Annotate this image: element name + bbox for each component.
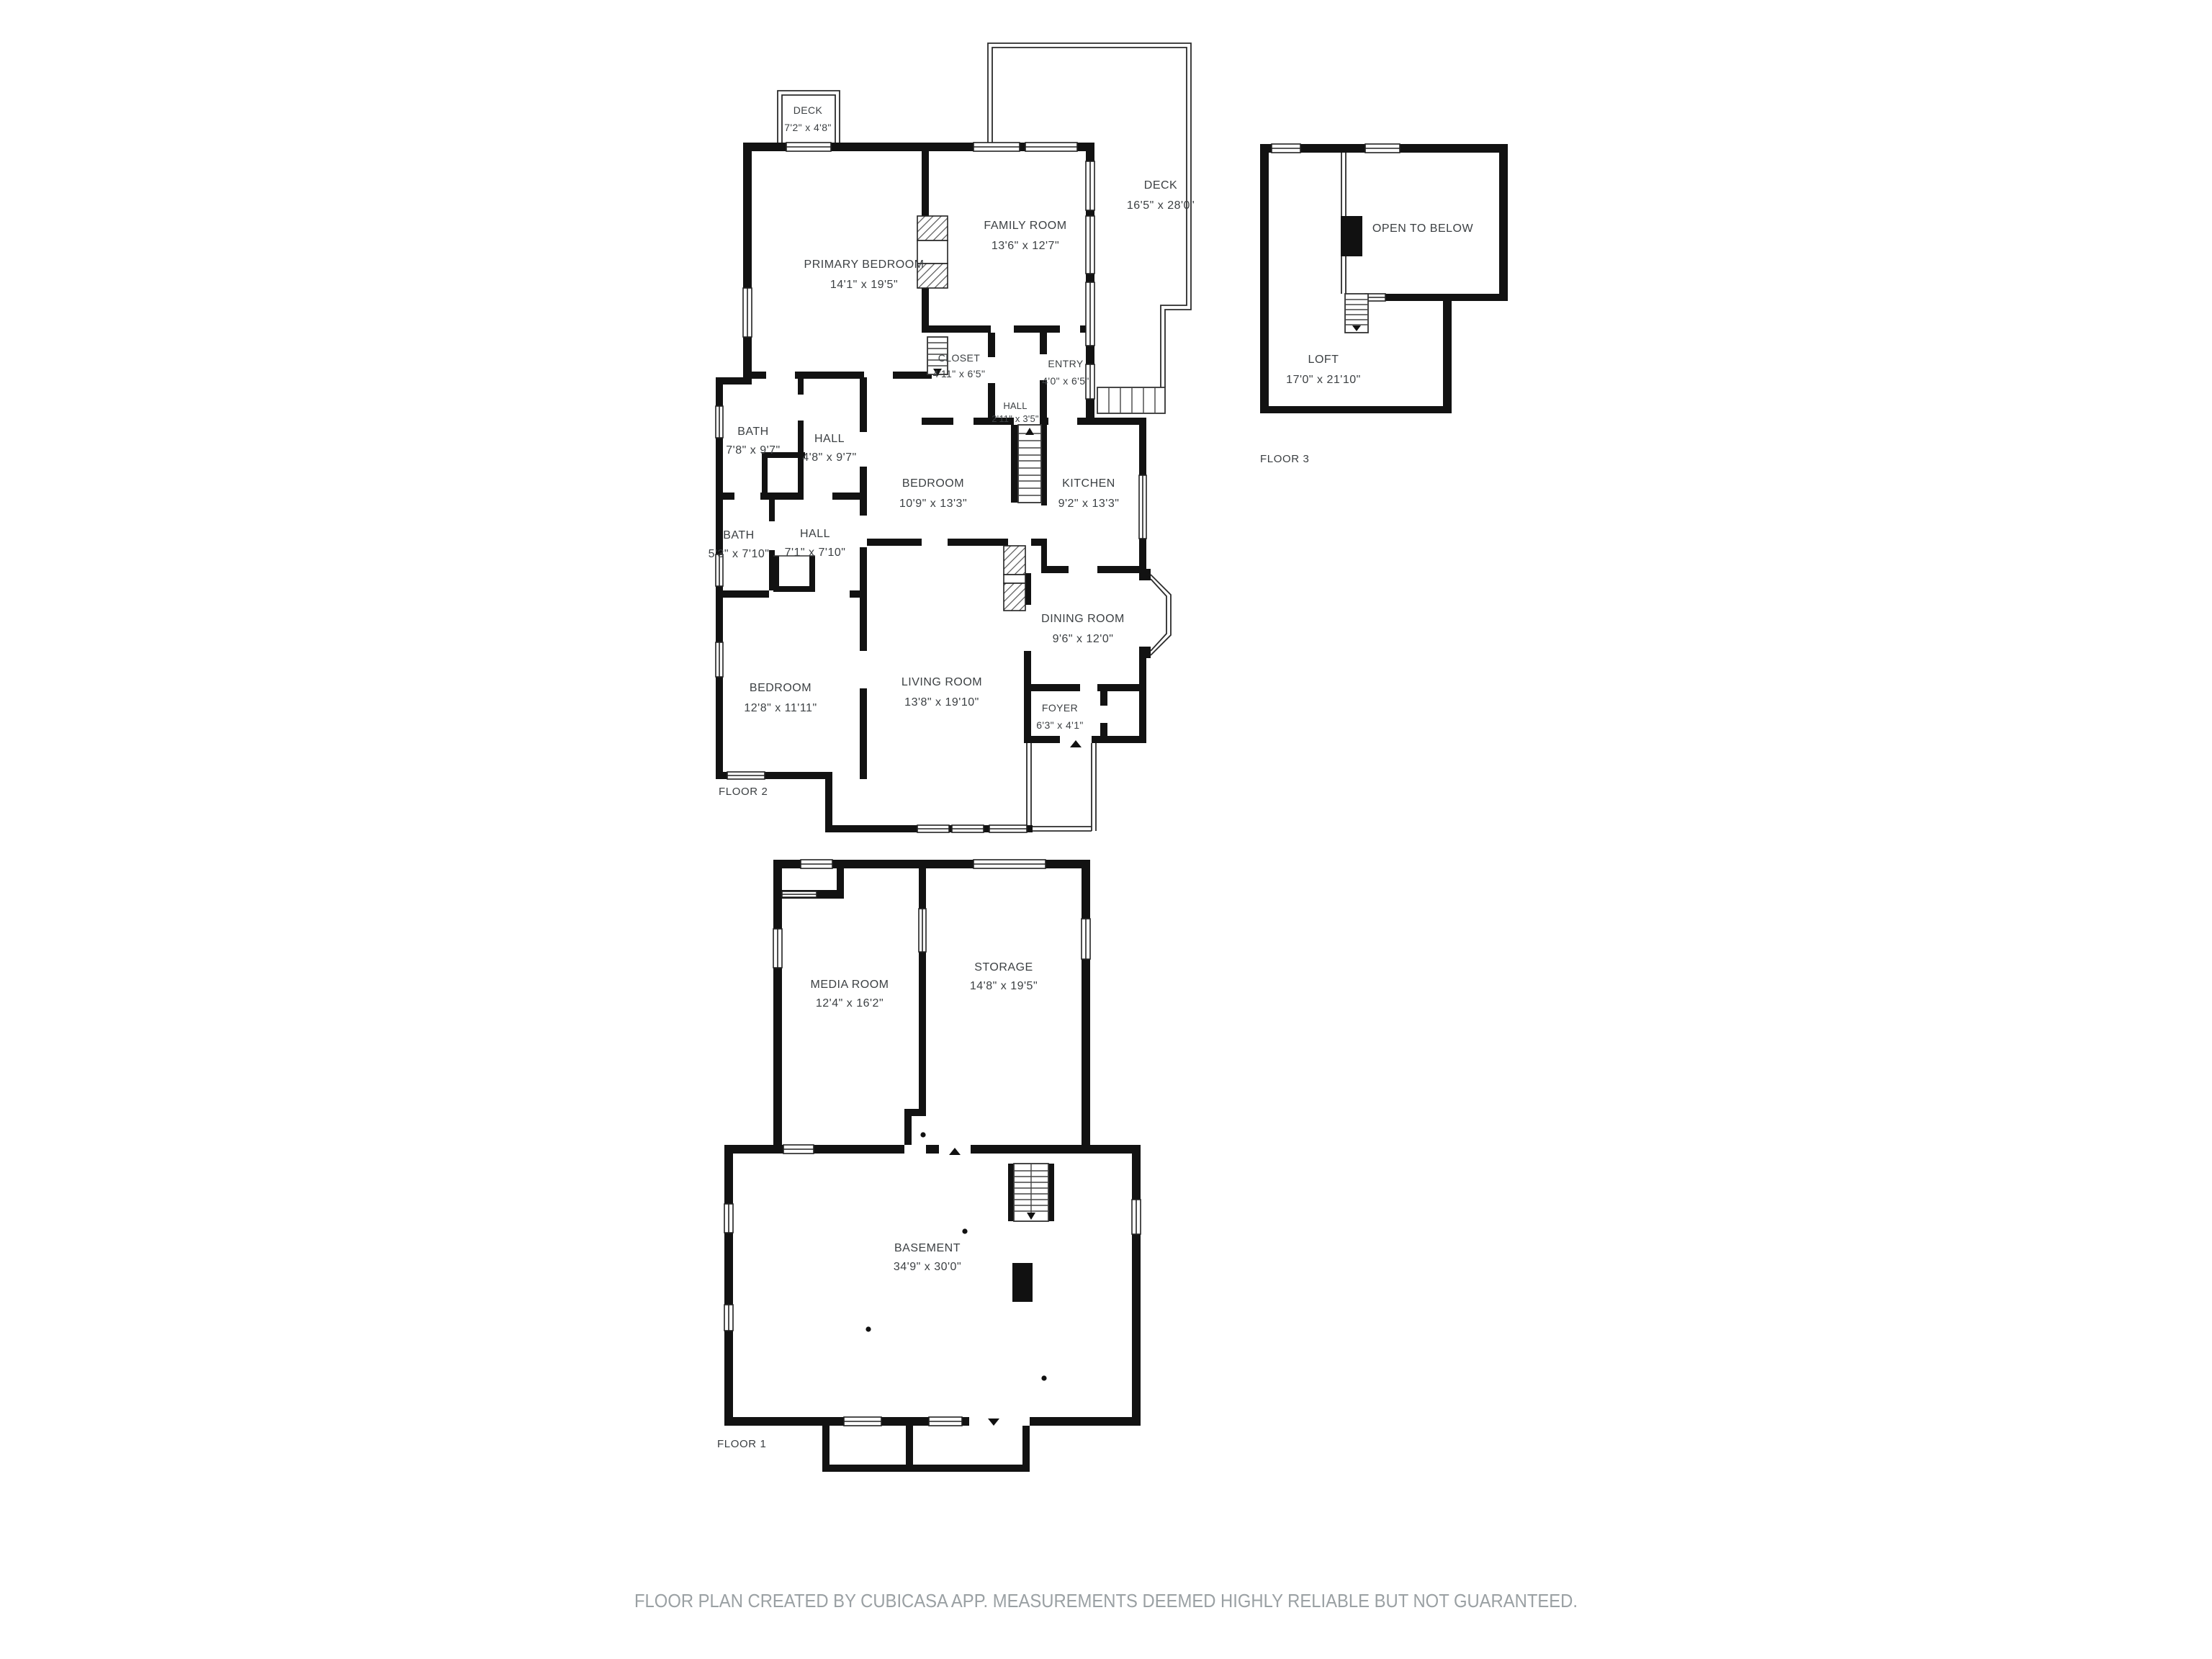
room-dims: 12'8" x 11'11" <box>744 702 817 714</box>
window-icon <box>1139 475 1146 539</box>
room-dims: 13'6" x 12'7" <box>992 240 1059 252</box>
room-label: MEDIA ROOM <box>810 979 889 991</box>
chimney-icon <box>1004 546 1025 611</box>
room-label: BATH <box>723 529 754 541</box>
room-dims: 14'1" x 19'5" <box>830 279 898 291</box>
room-label: HALL <box>1003 400 1027 411</box>
room-label: STORAGE <box>974 961 1033 974</box>
room-dims: 7'2" x 4'8" <box>784 122 832 133</box>
floor-label: FLOOR 3 <box>1260 453 1309 465</box>
room-dims: 13'8" x 19'10" <box>904 696 979 709</box>
room-label: ENTRY <box>1048 358 1083 369</box>
room-label: HALL <box>800 528 830 540</box>
room-label: KITCHEN <box>1062 477 1115 490</box>
page-background <box>0 0 2212 1659</box>
room-dims: 9'2" x 13'3" <box>1058 498 1120 510</box>
door-opening-icon <box>786 143 831 151</box>
room-label: LIVING ROOM <box>902 676 982 688</box>
floor-plan-canvas: DECK 7'2" x 4'8" PRIMARY BEDROOM 14'1" x… <box>0 0 2212 1659</box>
window-icon <box>917 825 949 832</box>
room-dims: 14'8" x 19'5" <box>970 980 1038 992</box>
footer-disclaimer: FLOOR PLAN CREATED BY CUBICASA APP. MEAS… <box>634 1590 1578 1611</box>
window-icon <box>989 825 1027 832</box>
room-label: DECK <box>1144 179 1177 192</box>
window-icon <box>716 406 723 438</box>
room-label: DECK <box>793 104 823 116</box>
window-icon <box>1086 282 1094 346</box>
room-label: BEDROOM <box>750 682 811 694</box>
room-dims: 12'4" x 16'2" <box>816 997 884 1010</box>
chimney-icon <box>1012 1263 1033 1302</box>
room-label: FAMILY ROOM <box>984 220 1066 232</box>
room-dims: 4'11" x 6'5" <box>933 368 986 379</box>
room-label: OPEN TO BELOW <box>1372 222 1474 235</box>
window-icon <box>1025 143 1077 151</box>
window-icon <box>1272 144 1300 153</box>
window-icon <box>724 1305 733 1331</box>
room-dims: 6'3" x 4'1" <box>1036 719 1084 731</box>
window-icon <box>727 772 765 779</box>
floor-label: FLOOR 1 <box>717 1438 766 1450</box>
room-dims: 34'9" x 30'0" <box>894 1261 961 1273</box>
column-dot-icon <box>866 1326 871 1331</box>
basement-staircase-icon <box>1008 1164 1054 1221</box>
window-icon <box>844 1417 881 1426</box>
window-icon <box>1132 1200 1141 1234</box>
window-icon <box>1082 919 1090 959</box>
room-label: HALL <box>814 433 845 445</box>
window-icon <box>1365 144 1400 153</box>
floor3-staircase-icon <box>1345 294 1368 333</box>
window-icon <box>716 642 723 677</box>
room-dims: 17'0" x 21'10" <box>1286 374 1361 386</box>
door-opening-icon <box>782 891 817 897</box>
window-icon <box>919 909 926 952</box>
room-label: LOFT <box>1308 354 1339 366</box>
window-icon <box>1086 216 1094 274</box>
room-dims: 5'3" x 7'10" <box>709 548 770 560</box>
window-icon <box>929 1417 962 1426</box>
room-label: BEDROOM <box>902 477 964 490</box>
window-icon <box>773 929 782 968</box>
floor-label: FLOOR 2 <box>719 786 768 798</box>
window-icon <box>724 1204 733 1233</box>
column-dot-icon <box>1041 1375 1046 1380</box>
room-label: FOYER <box>1042 702 1078 714</box>
column-dot-icon <box>962 1228 967 1233</box>
window-icon <box>974 860 1046 868</box>
room-dims: 9'6" x 12'0" <box>1053 633 1114 645</box>
room-dims: 2'11" x 3'5" <box>992 413 1039 424</box>
room-label: PRIMARY BEDROOM <box>804 258 925 271</box>
room-dims: 16'5" x 28'0" <box>1127 199 1195 212</box>
room-label: DINING ROOM <box>1041 613 1125 625</box>
window-icon <box>801 860 832 868</box>
deck-stairs-icon <box>1097 387 1165 413</box>
chimney-icon <box>1341 216 1362 256</box>
room-label: BASEMENT <box>894 1242 961 1254</box>
room-dims: 4'8" x 9'7" <box>802 451 856 464</box>
window-icon <box>783 1145 814 1154</box>
window-icon <box>743 288 752 337</box>
room-dims: 10'9" x 13'3" <box>899 498 967 510</box>
column-dot-icon <box>920 1132 925 1137</box>
room-label: CLOSET <box>938 352 980 364</box>
window-icon <box>1086 161 1094 210</box>
window-icon <box>952 825 984 832</box>
room-dims: 7'8" x 9'7" <box>726 444 780 457</box>
room-dims: 4'0" x 6'5" <box>1042 375 1089 387</box>
room-label: BATH <box>737 426 768 438</box>
fireplace-icon <box>917 216 948 288</box>
main-staircase-icon <box>1018 425 1041 503</box>
window-icon <box>974 143 1020 151</box>
room-dims: 7'1" x 7'10" <box>785 547 846 559</box>
